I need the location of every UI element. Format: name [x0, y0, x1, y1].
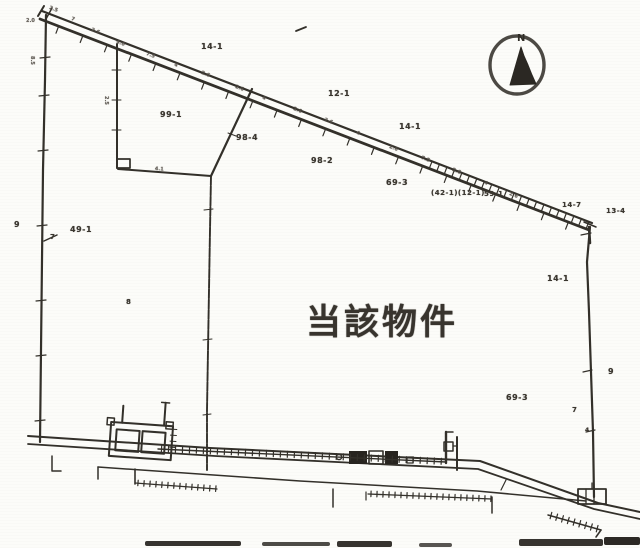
scan-artifact-band: [145, 537, 640, 547]
compass-n-label: N: [517, 33, 525, 44]
north-arrow-needle: [510, 47, 536, 85]
north-road: [38, 6, 596, 243]
survey-tick-marks: [56, 27, 601, 532]
scanned-cadastral-map: 14-199-198-412-114-198-269-3(42-1)(12-1)…: [0, 0, 640, 548]
west-boundary: [35, 15, 57, 442]
site-plan-linework: [0, 0, 640, 548]
south-road: [28, 27, 640, 537]
subject-property-label: 当該物件: [306, 306, 458, 341]
building-1: [105, 399, 179, 461]
east-boundary: [581, 227, 595, 497]
central-divider: [203, 176, 213, 470]
north-arrow: [490, 36, 544, 94]
